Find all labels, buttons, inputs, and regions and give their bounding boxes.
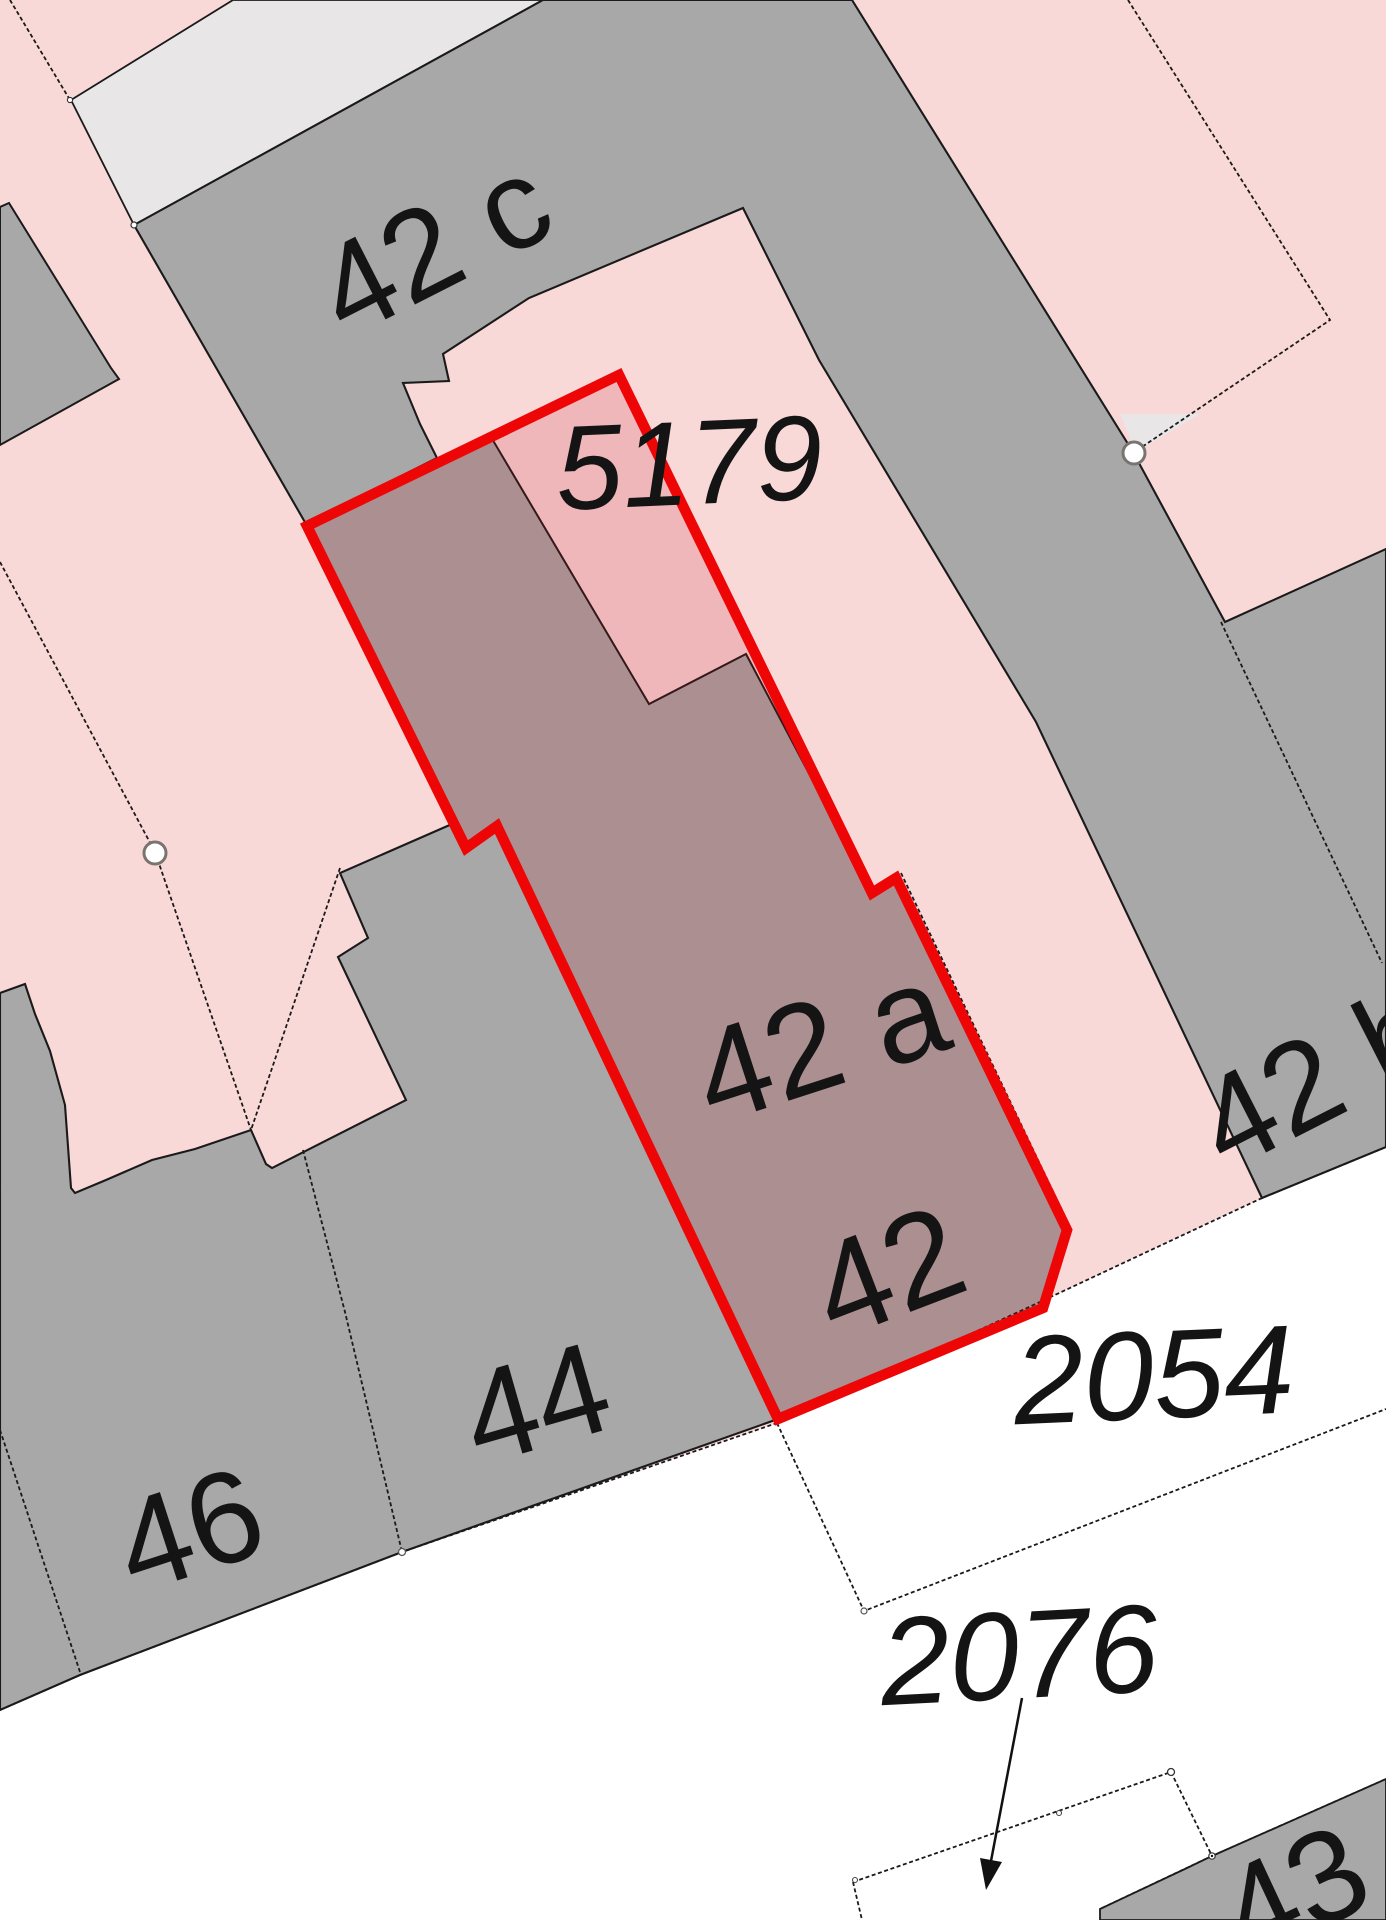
svg-text:5179: 5179 <box>553 390 826 536</box>
svg-text:2076: 2076 <box>876 1579 1162 1732</box>
svg-text:2054: 2054 <box>1009 1298 1296 1451</box>
